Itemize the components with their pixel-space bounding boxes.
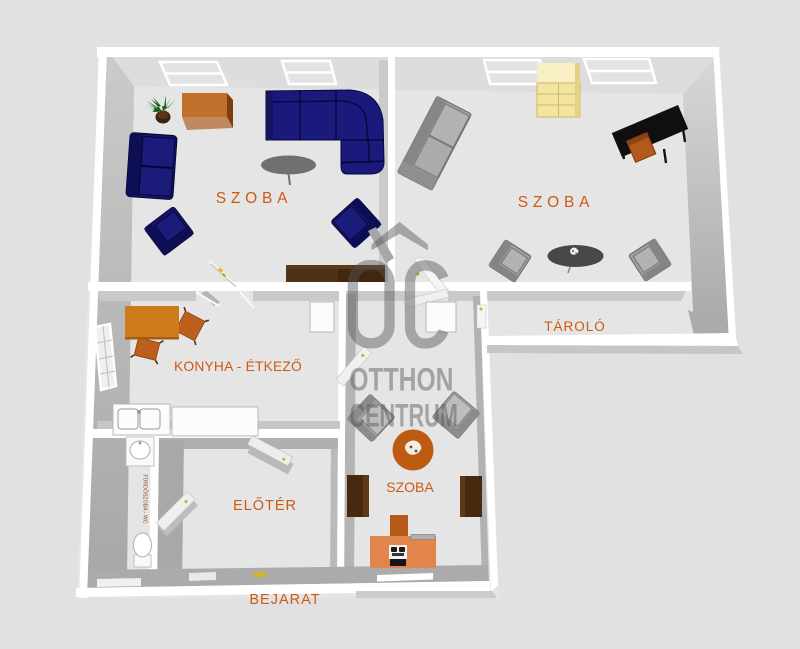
svg-text:BEJARAT: BEJARAT: [249, 592, 320, 608]
svg-text:FÜRDŐSZOBA - WC: FÜRDŐSZOBA - WC: [142, 475, 149, 524]
svg-text:OTTHON: OTTHON: [349, 362, 453, 398]
svg-text:TÁROLÓ: TÁROLÓ: [544, 319, 606, 334]
svg-text:KONYHA - ÉTKEZŐ: KONYHA - ÉTKEZŐ: [174, 358, 302, 374]
svg-text:ELŐTÉR: ELŐTÉR: [233, 497, 297, 514]
svg-text:SZOBA: SZOBA: [386, 479, 434, 495]
svg-text:SZOBA: SZOBA: [518, 194, 595, 211]
svg-text:CENTRUM: CENTRUM: [349, 398, 458, 434]
svg-text:SZOBA: SZOBA: [216, 190, 293, 207]
